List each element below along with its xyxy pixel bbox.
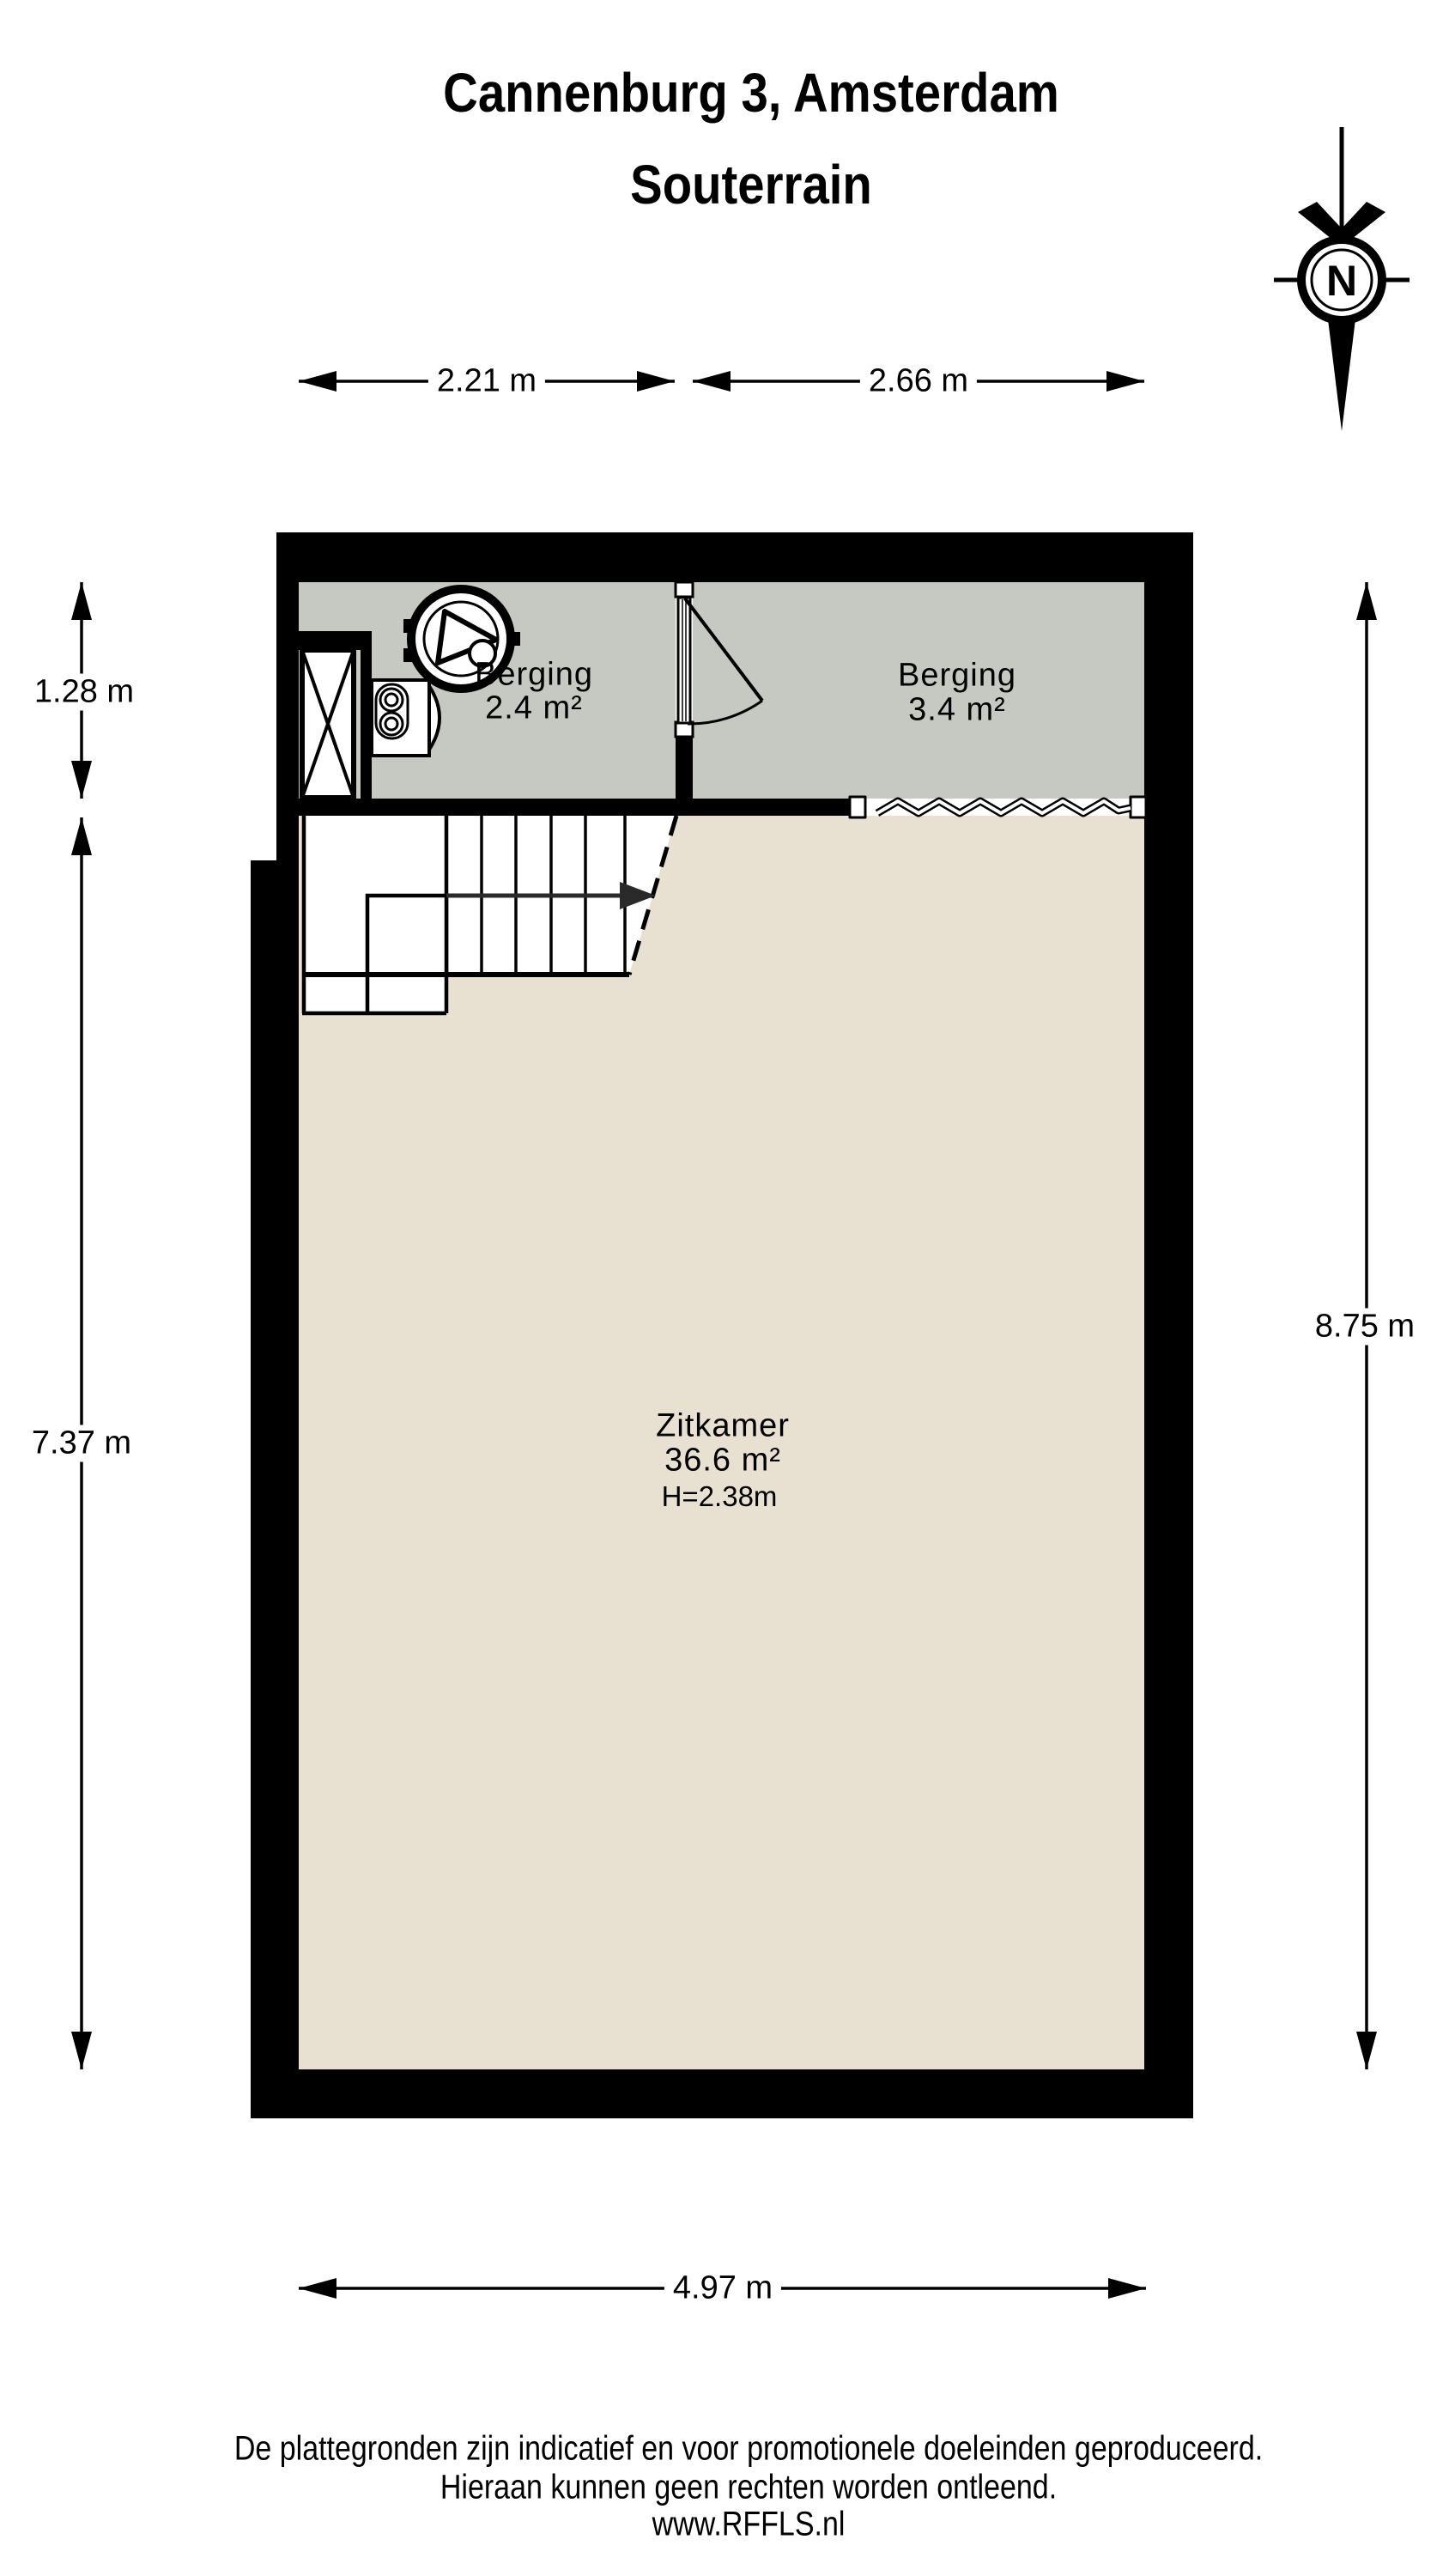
room-label-berging1-name: Berging (475, 657, 593, 694)
washer-tab (403, 648, 414, 662)
room-label-zitkamer-height: H=2.38m (662, 1480, 778, 1513)
boiler-icon (372, 680, 440, 756)
dim-arrowhead (299, 2278, 336, 2299)
dim-label-berging2-width: 2.66 m (860, 363, 977, 400)
door-leaf (678, 598, 690, 723)
page-title: Cannenburg 3, Amsterdam (443, 61, 1059, 125)
washer-tab (510, 632, 520, 646)
page-subtitle: Souterrain (630, 153, 872, 216)
stair-newel-box (367, 896, 446, 975)
room-label-berging2-name: Berging (898, 658, 1016, 695)
opening-jamb (850, 797, 865, 817)
dim-label-berging1-width: 2.21 m (428, 363, 545, 400)
footer-website: www.RFFLS.nl (652, 2506, 846, 2544)
dim-arrowhead (1106, 371, 1144, 392)
dim-label-zitkamer-depth: 7.37 m (23, 1425, 140, 1462)
dim-arrowhead (1108, 2278, 1146, 2299)
dim-arrowhead (693, 371, 731, 392)
dim-arrowhead (71, 817, 92, 855)
dim-arrowhead (71, 582, 92, 620)
dim-arrowhead (637, 371, 675, 392)
floorplan-canvas: N (0, 0, 1449, 2576)
room-label-zitkamer-name: Zitkamer (656, 1408, 790, 1445)
wall-left-lower (251, 860, 299, 2118)
north-compass: N (1274, 127, 1410, 431)
room-label-berging2-area: 3.4 m² (908, 692, 1006, 729)
wall-left-upper (276, 532, 299, 860)
compass-south-spike (1328, 319, 1355, 431)
boiler-knob-inner (385, 694, 397, 706)
footer-disclaimer-line2: Hieraan kunnen geen rechten worden ontle… (440, 2469, 1057, 2507)
opening-jamb (1131, 797, 1146, 817)
dim-label-berging-depth: 1.28 m (26, 674, 142, 711)
dim-arrowhead (71, 761, 92, 799)
boiler-knob-inner (385, 718, 397, 730)
room-label-berging1-area: 2.4 m² (485, 690, 583, 727)
footer-disclaimer-line1: De plattegronden zijn indicatief en voor… (234, 2430, 1263, 2469)
dim-label-zitkamer-width: 4.97 m (664, 2270, 781, 2307)
wall-bottom (251, 2069, 1193, 2118)
wall-interior-horizontal (299, 799, 850, 816)
floorplan-page: N Cannenburg 3, Amsterdam Souterrain 2.2… (0, 0, 1449, 2576)
compass-north-label: N (1326, 257, 1357, 305)
dim-arrowhead (71, 2032, 92, 2069)
duct-shaft (302, 650, 354, 798)
dim-label-right-depth: 8.75 m (1307, 1309, 1423, 1346)
dim-arrowhead (1356, 582, 1377, 620)
wall-right (1144, 532, 1193, 2118)
wall-top (276, 532, 1193, 582)
door-jamb (676, 582, 693, 597)
wall-door-stub (676, 737, 693, 816)
dim-arrowhead (299, 371, 336, 392)
room-label-zitkamer-area: 36.6 m² (664, 1443, 781, 1479)
washer-tab (403, 619, 414, 633)
dim-arrowhead (1356, 2032, 1377, 2069)
